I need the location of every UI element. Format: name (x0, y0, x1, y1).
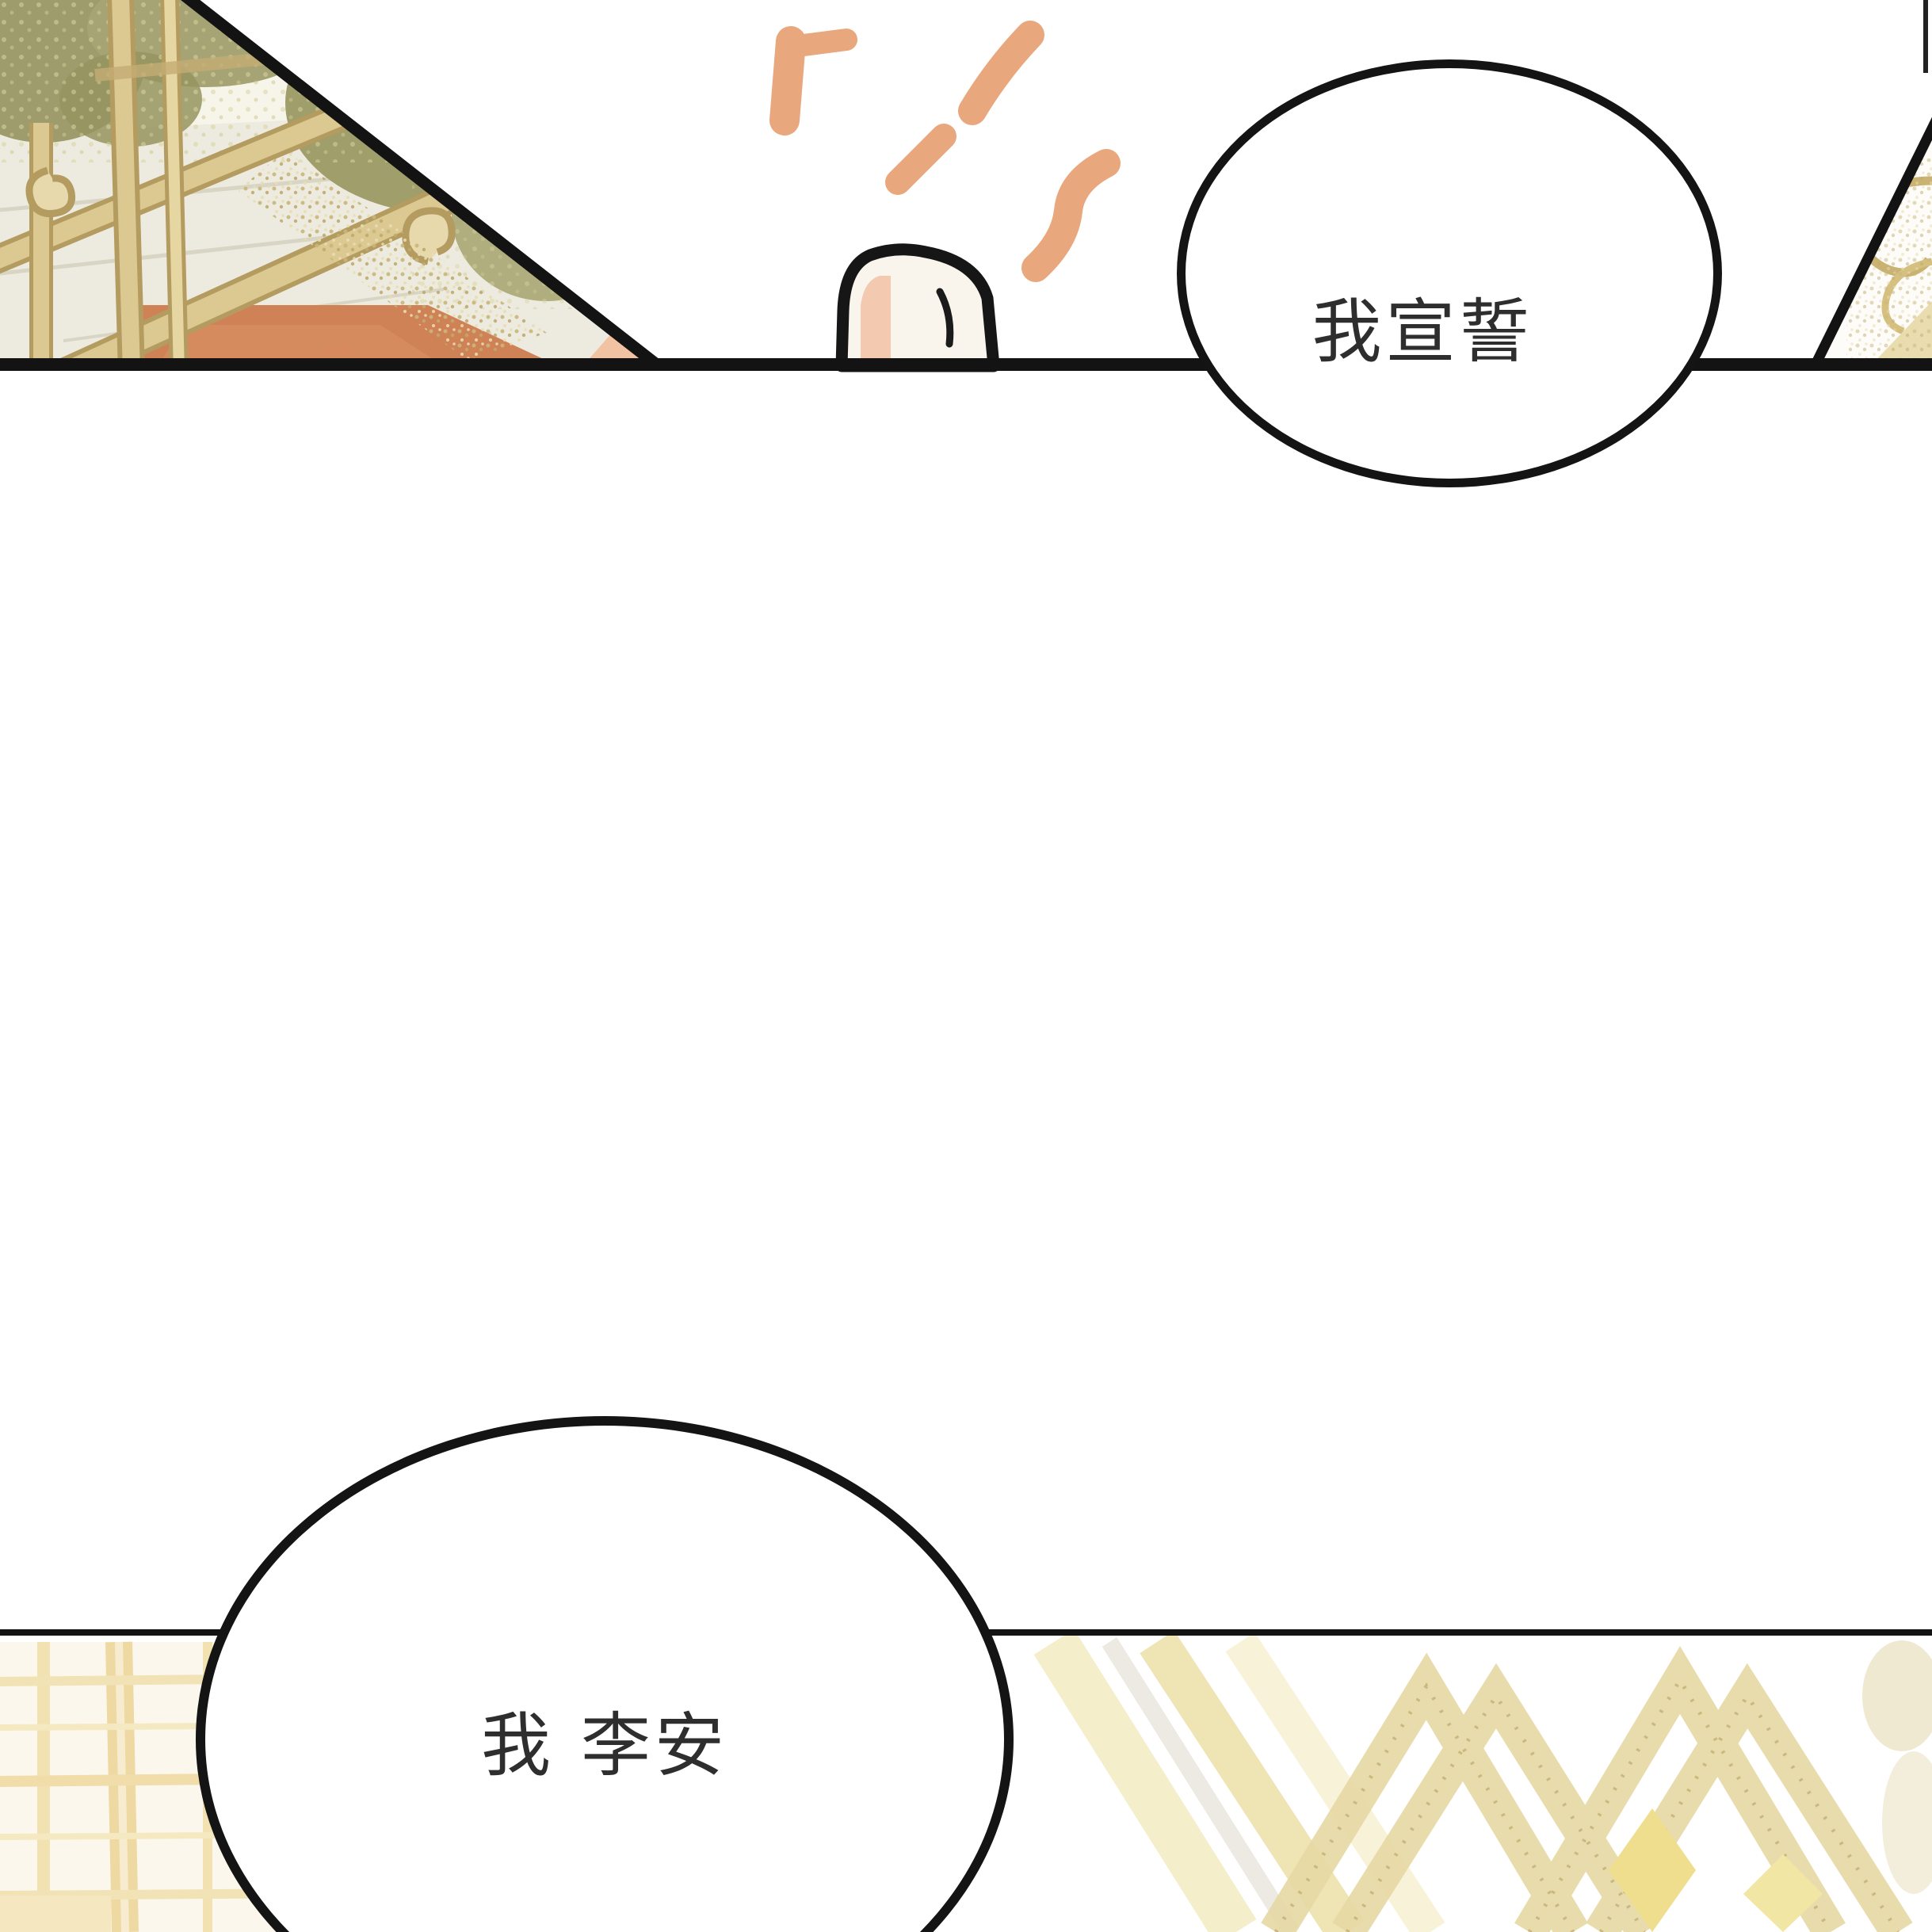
speech-bubble-name-text: 我 李安 (332, 1705, 877, 1785)
corner-ornament-artwork (1807, 111, 1932, 368)
terrace-artwork (0, 0, 658, 372)
finger-shade (861, 276, 891, 365)
webtoon-page: 我宣誓 我 李安 (0, 0, 1932, 1932)
motion-strokes (785, 35, 1106, 268)
fingertip (842, 250, 994, 366)
speech-bubble-oath (1177, 59, 1722, 487)
speech-bubble-oath-text: 我宣誓 (1150, 292, 1695, 372)
